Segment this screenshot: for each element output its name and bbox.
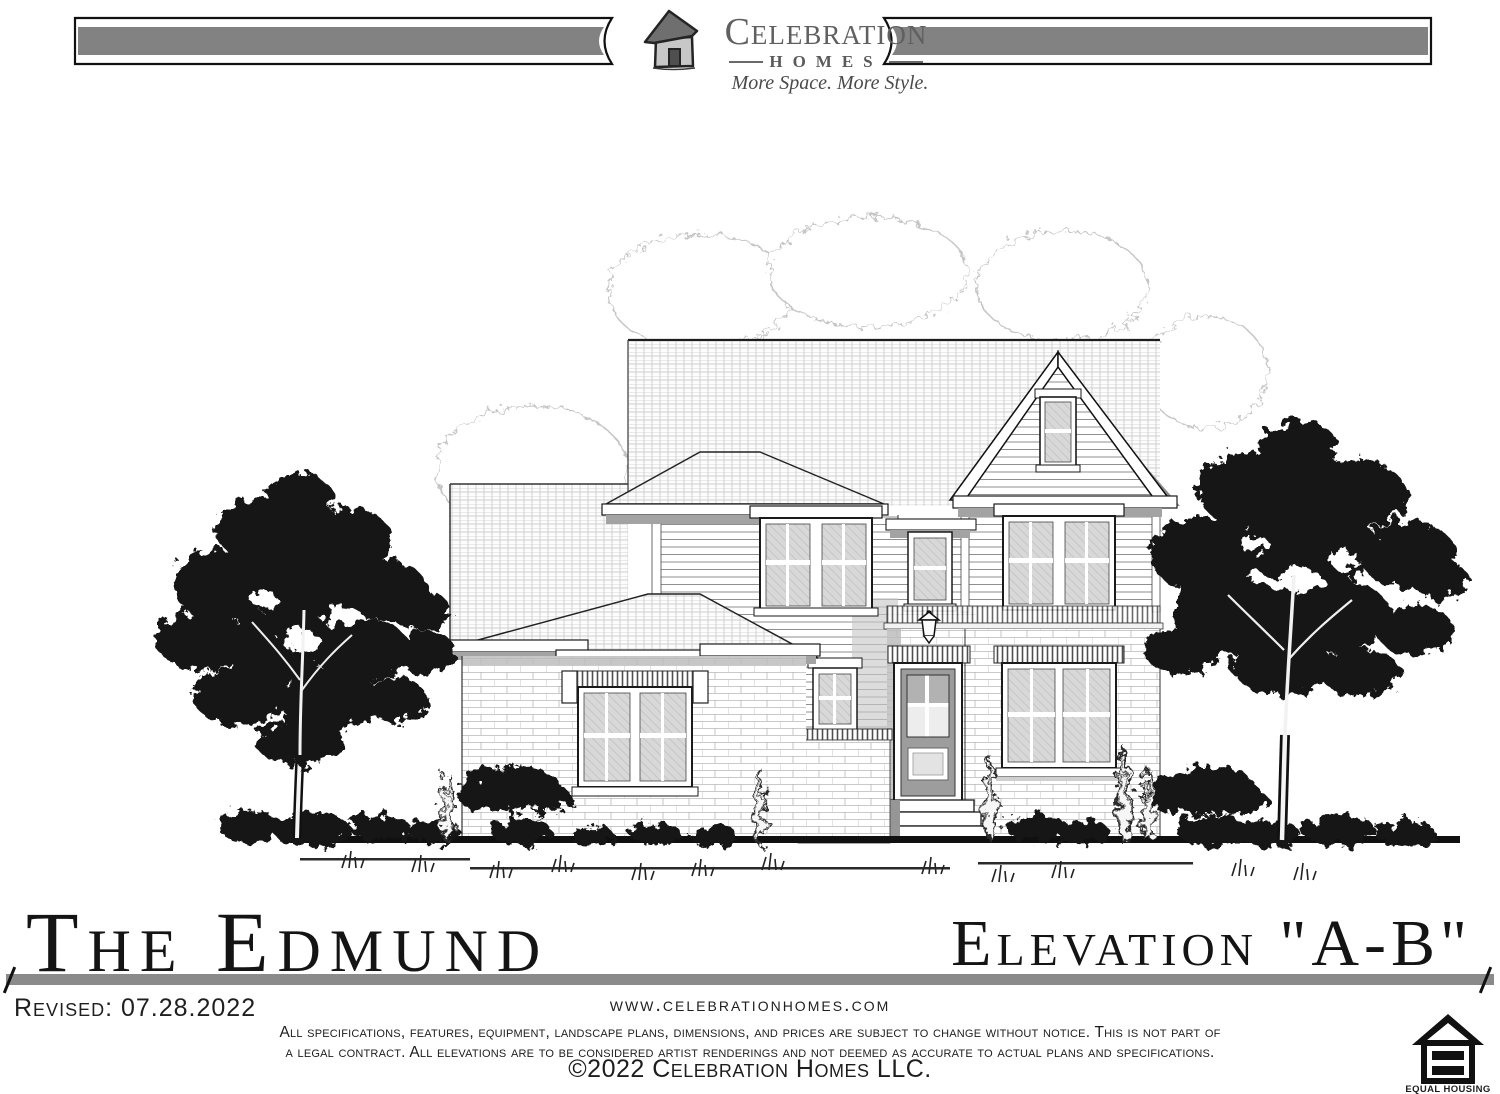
elevation-drawing: [0, 0, 1500, 900]
porch-knee-wall: [796, 729, 892, 843]
entry-transom-window: [904, 532, 956, 611]
elevation-sheet: Celebration Homes More Space. More Style…: [0, 0, 1500, 1094]
disclaimer-line-1: All specifications, features, equipment,…: [0, 1023, 1500, 1043]
website-url: www.celebrationhomes.com: [0, 994, 1500, 1017]
equal-housing-icon: [1410, 1012, 1486, 1084]
elevation-label: Elevation "A-B": [951, 906, 1472, 982]
left-wing-window: [562, 671, 708, 796]
grass-tufts: [342, 851, 1316, 882]
divider-bar: [6, 974, 1494, 985]
attic-window: [1035, 389, 1081, 472]
first-floor-window-right: [994, 646, 1124, 781]
copyright-notice: ©2022 Celebration Homes LLC.: [0, 1055, 1500, 1084]
equal-housing-line-1: EQUAL HOUSING: [1398, 1084, 1498, 1094]
second-floor-window-right: [994, 504, 1124, 610]
equal-housing-block: EQUAL HOUSING OPPORTUNITY: [1398, 1012, 1498, 1094]
entry-door: [888, 646, 970, 802]
second-floor-window-left: [750, 506, 882, 616]
porch-window: [808, 658, 862, 730]
left-tree: [156, 474, 455, 838]
